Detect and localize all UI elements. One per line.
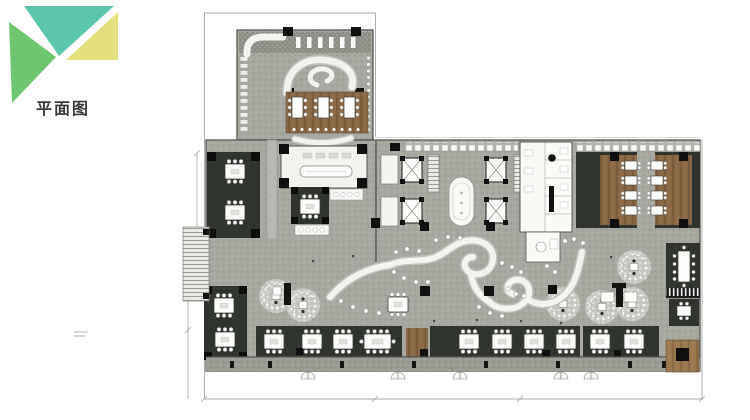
service-post-cap — [612, 283, 626, 288]
dining-table — [225, 159, 245, 183]
column — [420, 286, 430, 296]
dimension-text-marks — [74, 332, 88, 336]
conference-rooms-right — [666, 243, 700, 326]
column — [486, 222, 495, 231]
column — [548, 285, 557, 294]
booth-table — [624, 329, 644, 353]
tower-table — [340, 97, 359, 118]
louver-strip — [666, 288, 700, 298]
dining-table — [214, 293, 234, 317]
elevator-shaft — [484, 156, 508, 184]
dining-table — [300, 194, 320, 218]
door-swing — [453, 372, 467, 379]
wall-band — [206, 357, 700, 371]
door-swing — [554, 372, 568, 379]
round-table-zone — [617, 250, 651, 284]
booth-table — [459, 329, 479, 353]
page: 平面图 — [0, 0, 750, 420]
column — [371, 218, 380, 228]
entrance-stairs — [183, 227, 209, 301]
booth-table — [333, 329, 353, 353]
dining-table — [225, 200, 245, 224]
door-swing — [584, 372, 598, 379]
window-strip — [404, 142, 518, 151]
column — [484, 286, 494, 296]
service-post — [616, 285, 623, 307]
elevator-shaft — [400, 197, 424, 225]
waiting-bench-right — [330, 189, 363, 200]
restroom-annex — [526, 232, 560, 262]
booth-table — [556, 329, 576, 353]
elevator-shaft — [400, 156, 424, 184]
dining-table — [215, 327, 235, 351]
window-strip — [576, 142, 700, 151]
service-room — [381, 197, 398, 226]
tower-table — [288, 97, 307, 118]
side-table — [601, 292, 614, 302]
stairwell — [428, 155, 439, 192]
booth-table — [590, 329, 610, 353]
wood-corner-bottom-right — [666, 340, 699, 372]
elevator-shaft — [484, 197, 508, 225]
door-swing — [301, 372, 315, 379]
column — [420, 222, 429, 231]
duct — [549, 186, 554, 212]
floor-table — [388, 292, 408, 316]
floor-plan-drawing — [0, 0, 750, 420]
lobby-oval-feature — [449, 177, 474, 226]
booth-table — [524, 329, 544, 353]
perimeter-wall-bottom — [206, 357, 700, 379]
tower-chair-row — [293, 128, 360, 131]
door-swing — [391, 372, 405, 379]
booth-table — [302, 329, 322, 353]
round-table-zone — [286, 288, 320, 322]
column — [390, 143, 400, 151]
core-dot — [548, 154, 556, 162]
corridor-wall — [267, 140, 277, 239]
service-post — [284, 283, 291, 305]
side-table — [624, 292, 637, 302]
host-stand — [273, 287, 281, 295]
waiting-bench-bottom — [295, 225, 329, 235]
service-room — [381, 155, 398, 184]
tower-table — [314, 97, 333, 118]
booth-table — [492, 329, 512, 353]
booth-table — [264, 329, 284, 353]
